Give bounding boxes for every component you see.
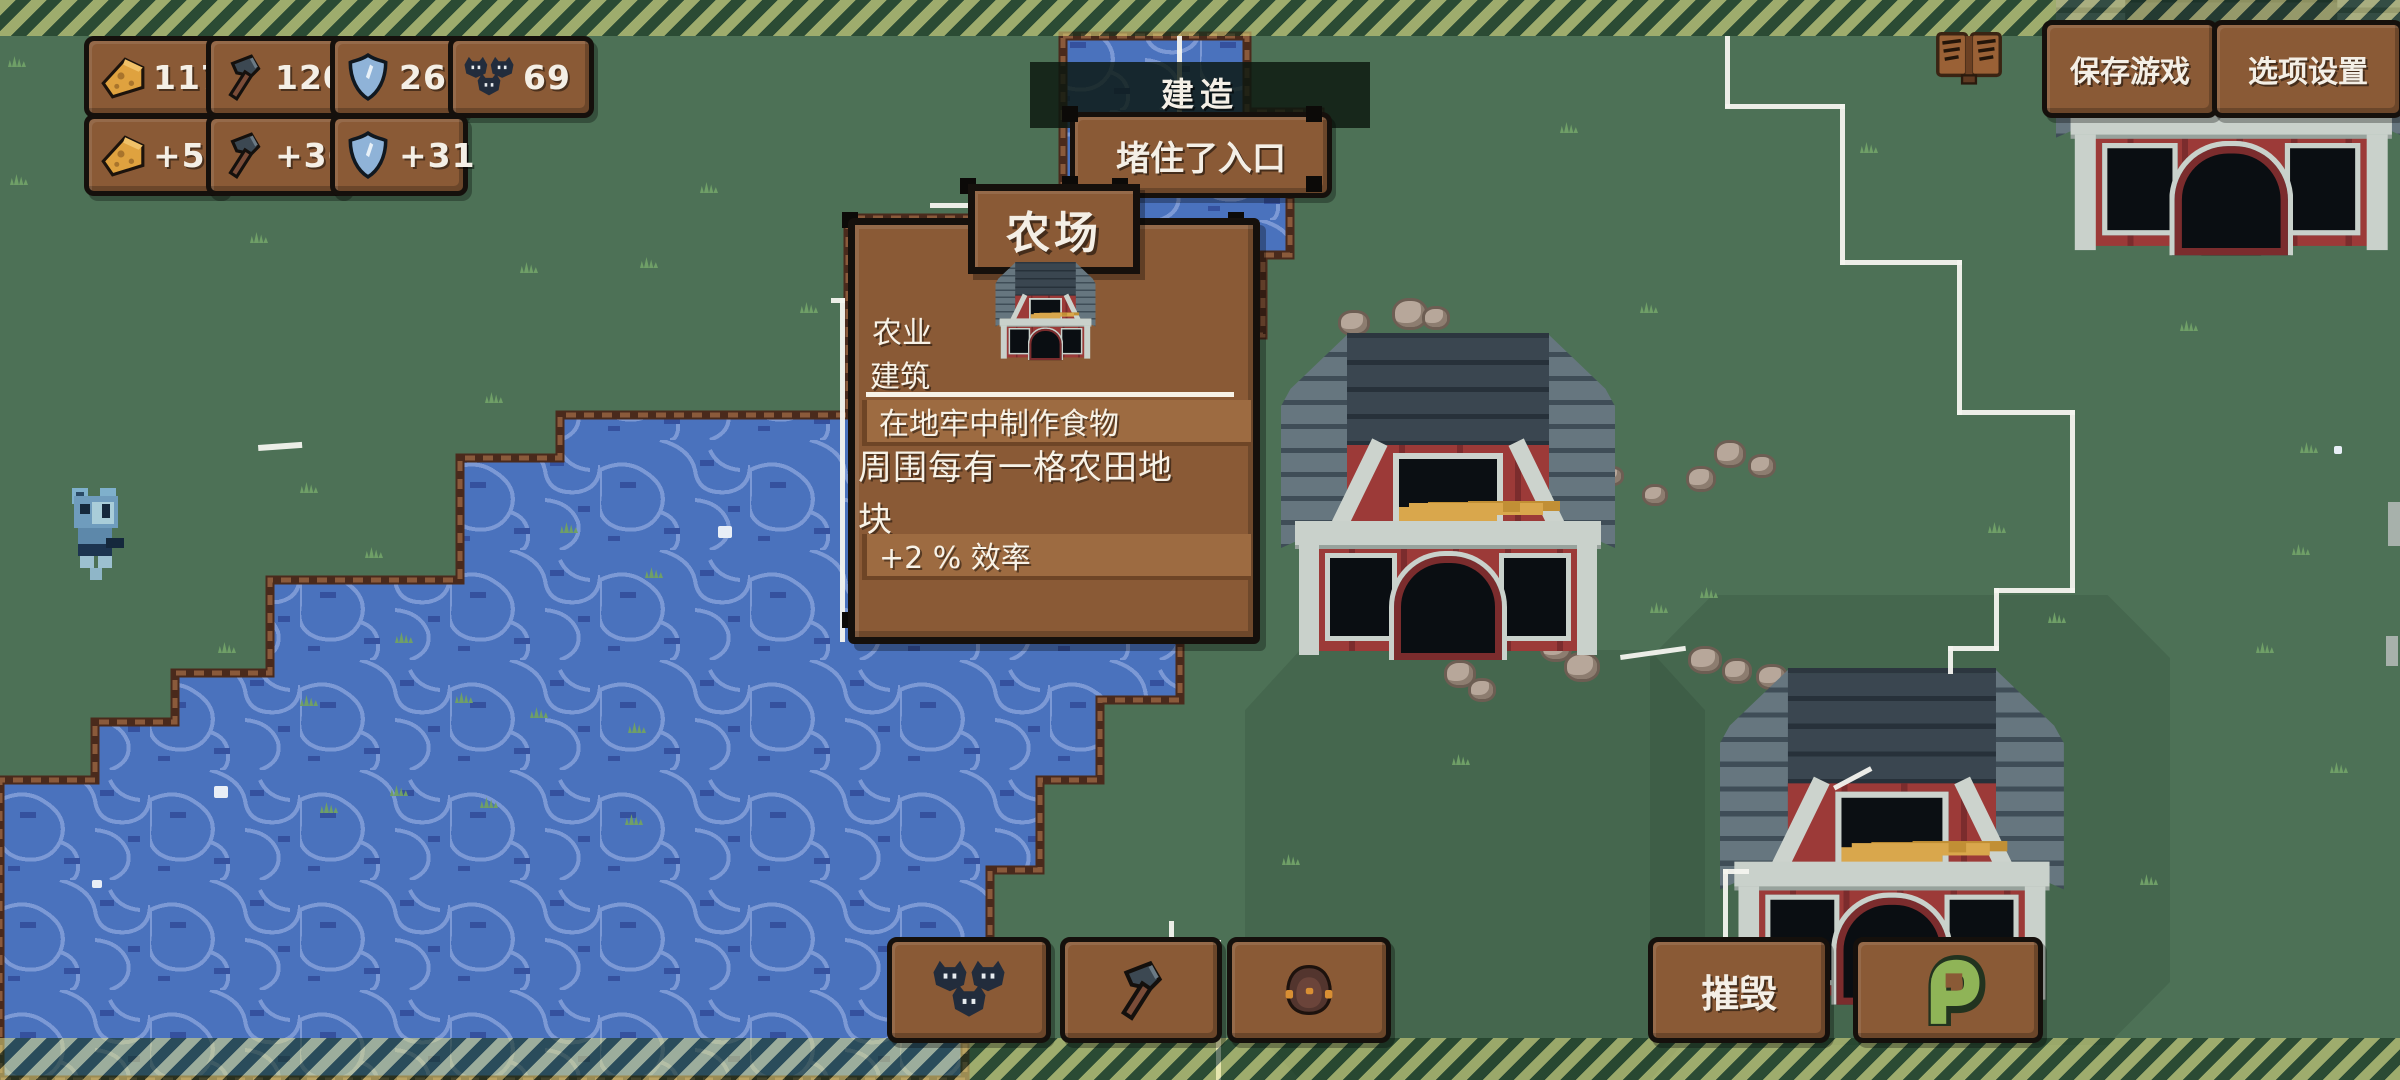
- barn-pillar: [2075, 135, 2096, 250]
- tooltip-description-line1: 周围每有一格农田地: [858, 440, 1173, 489]
- barn-band: [1295, 521, 1601, 545]
- rock-debris: [1642, 484, 1668, 506]
- bats-icon: [926, 957, 1012, 1023]
- tooltip-craft-text: 在地牢中制作食物: [879, 399, 1119, 443]
- barn-band: [1000, 318, 1092, 325]
- rock-debris: [1468, 678, 1496, 702]
- hammer-icon: [219, 130, 269, 180]
- snake-action-button[interactable]: [1853, 937, 2043, 1043]
- territory-border: [2070, 410, 2075, 593]
- options-label: 选项设置: [2248, 47, 2368, 91]
- territory-border: [1994, 588, 1999, 651]
- hammer-icon: [1109, 957, 1173, 1023]
- tooltip-effect-row: +2 % 效率: [862, 534, 1251, 580]
- water-sparkle: [92, 880, 102, 888]
- water-sparkle: [718, 526, 732, 538]
- rock-debris: [1748, 454, 1776, 478]
- barn-window: [2102, 143, 2178, 235]
- barn-pillar: [1084, 326, 1090, 359]
- tooltip-title-text: 农场: [1006, 197, 1102, 261]
- barn-door: [1389, 551, 1507, 660]
- panel-corner-notch: [1062, 106, 1078, 122]
- territory-border: [1948, 646, 1999, 651]
- save-game-button[interactable]: 保存游戏: [2042, 20, 2218, 118]
- barn-window: [2285, 143, 2361, 235]
- barn-window: [1061, 328, 1083, 354]
- rock-debris: [1422, 306, 1450, 330]
- resource-hammer: 120: [206, 36, 350, 118]
- save-game-label: 保存游戏: [2070, 47, 2190, 91]
- demolish-label: 摧毁: [1701, 963, 1777, 1018]
- tooltip-effect-text: +2 % 效率: [879, 533, 1031, 577]
- barn-building[interactable]: [1283, 333, 1613, 658]
- income-hammer: +36: [206, 114, 350, 196]
- territory-border: [1723, 869, 1728, 943]
- stone-block: [2388, 502, 2400, 546]
- barn-roof: [1788, 668, 1996, 795]
- farm-sprite: [996, 262, 1095, 360]
- stone-block: [2386, 636, 2398, 666]
- barn-window: [1325, 553, 1397, 641]
- territory-border: [1725, 36, 1730, 108]
- territory-border: [1725, 104, 1845, 109]
- cheese-icon: [97, 52, 147, 102]
- panel-corner-notch: [1306, 176, 1322, 192]
- shield-icon: [343, 52, 393, 102]
- barn-pillar: [1001, 326, 1007, 359]
- build-mode-title: 建造: [1161, 68, 1239, 116]
- panel-corner-notch: [1306, 106, 1322, 122]
- shield-income: +31: [399, 136, 476, 175]
- tooltip-category-1: 农业: [872, 308, 932, 352]
- income-shield: +31: [330, 114, 468, 196]
- water-sparkle: [2334, 446, 2342, 454]
- barn-roof: [1347, 333, 1549, 456]
- resource-bats: 69: [448, 36, 594, 118]
- tooltip-divider: [866, 392, 1234, 397]
- hammer-icon: [219, 52, 269, 102]
- territory-border: [1840, 104, 1845, 265]
- rock-debris: [1688, 646, 1722, 674]
- barn-band: [1734, 862, 2049, 887]
- mouse-creature[interactable]: [66, 484, 126, 584]
- hazard-stripe-bar-bottom: [0, 1038, 2400, 1080]
- territory-border: [1840, 260, 1962, 265]
- bats-action-button[interactable]: [887, 937, 1051, 1043]
- blocked-entrance-label: 堵住了入口: [1116, 131, 1286, 180]
- water-sparkle: [214, 786, 228, 798]
- territory-border: [1994, 588, 2075, 593]
- demolish-button[interactable]: 摧毁: [1648, 937, 1830, 1043]
- tooltip-category-2: 建筑: [870, 352, 930, 396]
- book-icon[interactable]: [1932, 24, 2006, 92]
- barn-pillar: [2367, 135, 2388, 250]
- barn-pillar: [1299, 545, 1319, 655]
- game-viewport: 1175 120 268 69 +59 +36 +31 保存游戏 选项设置 建造…: [0, 0, 2400, 1080]
- rock-debris: [1686, 466, 1716, 492]
- options-button[interactable]: 选项设置: [2212, 20, 2400, 118]
- territory-border: [840, 298, 845, 642]
- territory-border: [1957, 260, 1962, 415]
- barn-door: [2169, 141, 2293, 255]
- bats-icon: [461, 53, 517, 101]
- tooltip-title: 农场: [968, 184, 1140, 274]
- cheese-icon: [97, 130, 147, 180]
- territory-border: [1948, 646, 1953, 674]
- barn-hay-window: [1393, 453, 1503, 529]
- territory-border: [1723, 869, 1749, 874]
- barn-pillar: [1577, 545, 1597, 655]
- barn-window: [1499, 553, 1571, 641]
- hazard-stripe-bar-top: [0, 0, 2400, 36]
- shield-icon: [343, 130, 393, 180]
- mole-action-button[interactable]: [1227, 937, 1391, 1043]
- rock-debris: [1714, 440, 1746, 468]
- territory-border: [831, 298, 845, 303]
- barn-door: [1028, 327, 1063, 360]
- barn-hay-window: [1835, 792, 1948, 870]
- barn-hay-window: [1029, 298, 1062, 321]
- bats-count: 69: [523, 58, 571, 97]
- mole-icon: [1275, 957, 1343, 1023]
- snake-icon: [1910, 954, 1986, 1026]
- build-hammer-button[interactable]: [1060, 937, 1222, 1043]
- territory-border: [1957, 410, 2075, 415]
